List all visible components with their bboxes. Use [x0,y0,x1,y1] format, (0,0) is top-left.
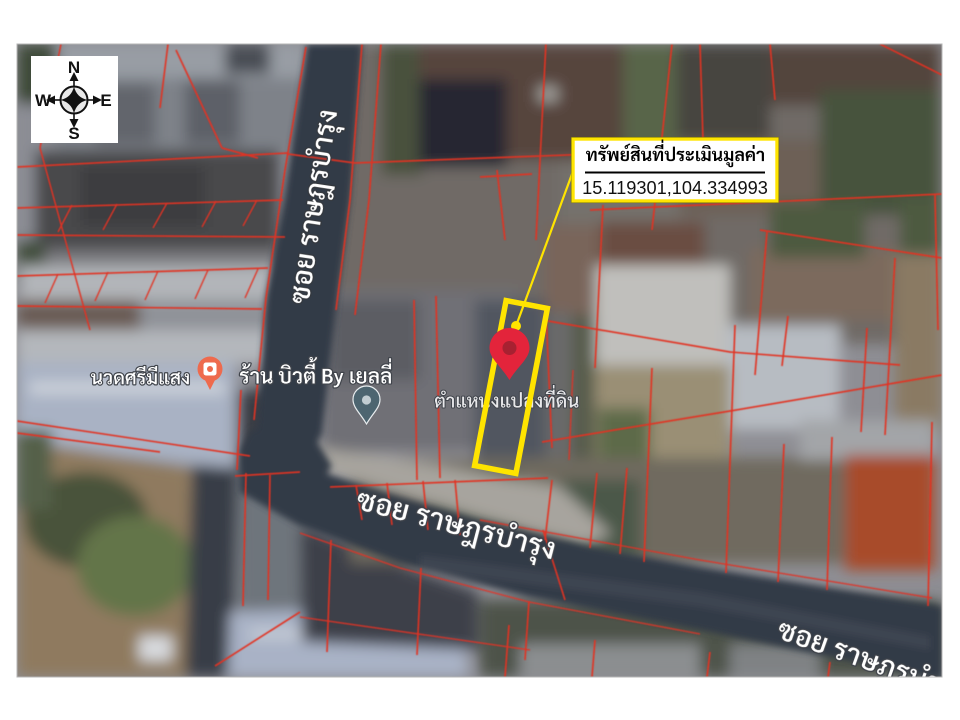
svg-text:W: W [35,91,52,110]
svg-text:S: S [68,124,79,143]
svg-text:N: N [68,58,80,77]
svg-text:15.119301,104.334993: 15.119301,104.334993 [582,178,768,198]
svg-text:E: E [100,91,111,110]
